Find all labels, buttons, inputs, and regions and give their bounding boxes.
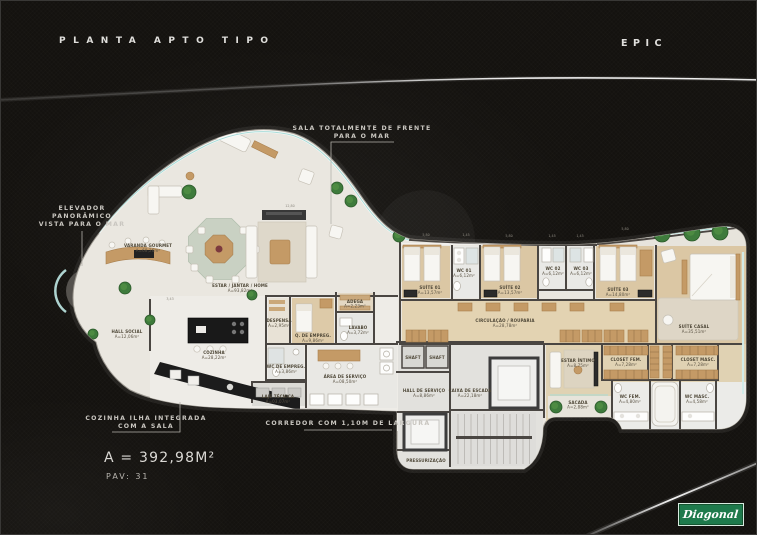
brand-logo: Diagonal [678,503,744,526]
callout-sala-line2: PARA O MAR [334,133,391,140]
tree [119,282,131,294]
callout-sala-line1: SALA TOTALMENTE DE FRENTE [292,125,431,132]
callout-cozinha-line2: COM A SALA [118,423,174,430]
project-name: EPIC [621,38,667,49]
room-label-sacada-intima: SACADAA=2,88m² [567,400,589,410]
room-label-pressurizacao: PRESSURIZAÇÃO [406,458,446,463]
callout-cozinha-line1: COZINHA ILHA INTEGRADA [85,415,206,422]
dimension-label: 12,80 [285,204,294,208]
room-label-adega: ADEGAA=2,23m² [344,299,366,309]
dimension-label: 5,80 [505,234,512,238]
tree [550,401,562,413]
dimension-label: 3,43 [166,297,173,301]
dimension-label: 5,80 [422,233,429,237]
bathtub [652,382,678,426]
dimension-label: 1,45 [576,234,583,238]
page-title: PLANTA APTO TIPO [59,36,276,46]
room-label-lavabo: LAVABOA=3,72m² [347,325,369,335]
top-swoosh-line [0,78,757,100]
room-label-shaft-1: SHAFT [405,355,421,360]
callout-corredor-text: CORREDOR COM 1,10M DE LARGURA [266,420,431,427]
room-label-suite-03: SUÍTE 03A=14,80m² [606,287,631,297]
floor-number-text: PAV: 31 [106,472,150,481]
stairs [452,412,536,466]
room-label-cozinha: COZINHAA=28,22m² [202,350,227,360]
dimension-label: 1,45 [462,233,469,237]
room-label-suite-casal: SUÍTE CASALA=35,51m² [679,324,710,334]
room-label-hall-social: HALL SOCIALA=12,06m² [112,329,143,339]
room-label-shaft-2: SHAFT [429,355,445,360]
room-label-laje-tecnica: LAJE TÉCNICAA=03,07m² [262,394,295,404]
room-label-despensa: DESPENSAA=2,95m² [266,318,292,328]
dimension-label: 1,45 [548,234,555,238]
callout-elevador-line1: ELEVADOR [58,205,105,212]
total-area-text: A = 392,98M² [104,450,215,466]
room-label-suite-02: SUÍTE 02A=13,57m² [498,285,523,295]
tree [182,185,196,199]
callout-elevador-line3: VISTA PARA O MAR [39,221,126,228]
tree [595,401,607,413]
tree [345,195,357,207]
elevator-glass-arc [55,270,66,312]
tree [331,182,343,194]
callout-elevador-line2: PANORÂMICO [52,211,112,220]
brand-logo-text: Diagonal [683,509,739,520]
tree [145,315,155,325]
room-label-suite-01: SUÍTE 01A=13,57m² [418,285,443,295]
tv-panel [262,210,306,220]
page: VARANDA GOURMETA=68,26m² ESTAR / JANTAR … [0,0,757,535]
room-label-wc-masc: WC MASC.A=4,58m² [685,394,710,404]
room-label-wc-fem: WC FEM.A=4,80m² [619,394,641,404]
dimension-label: 5,80 [621,227,628,231]
